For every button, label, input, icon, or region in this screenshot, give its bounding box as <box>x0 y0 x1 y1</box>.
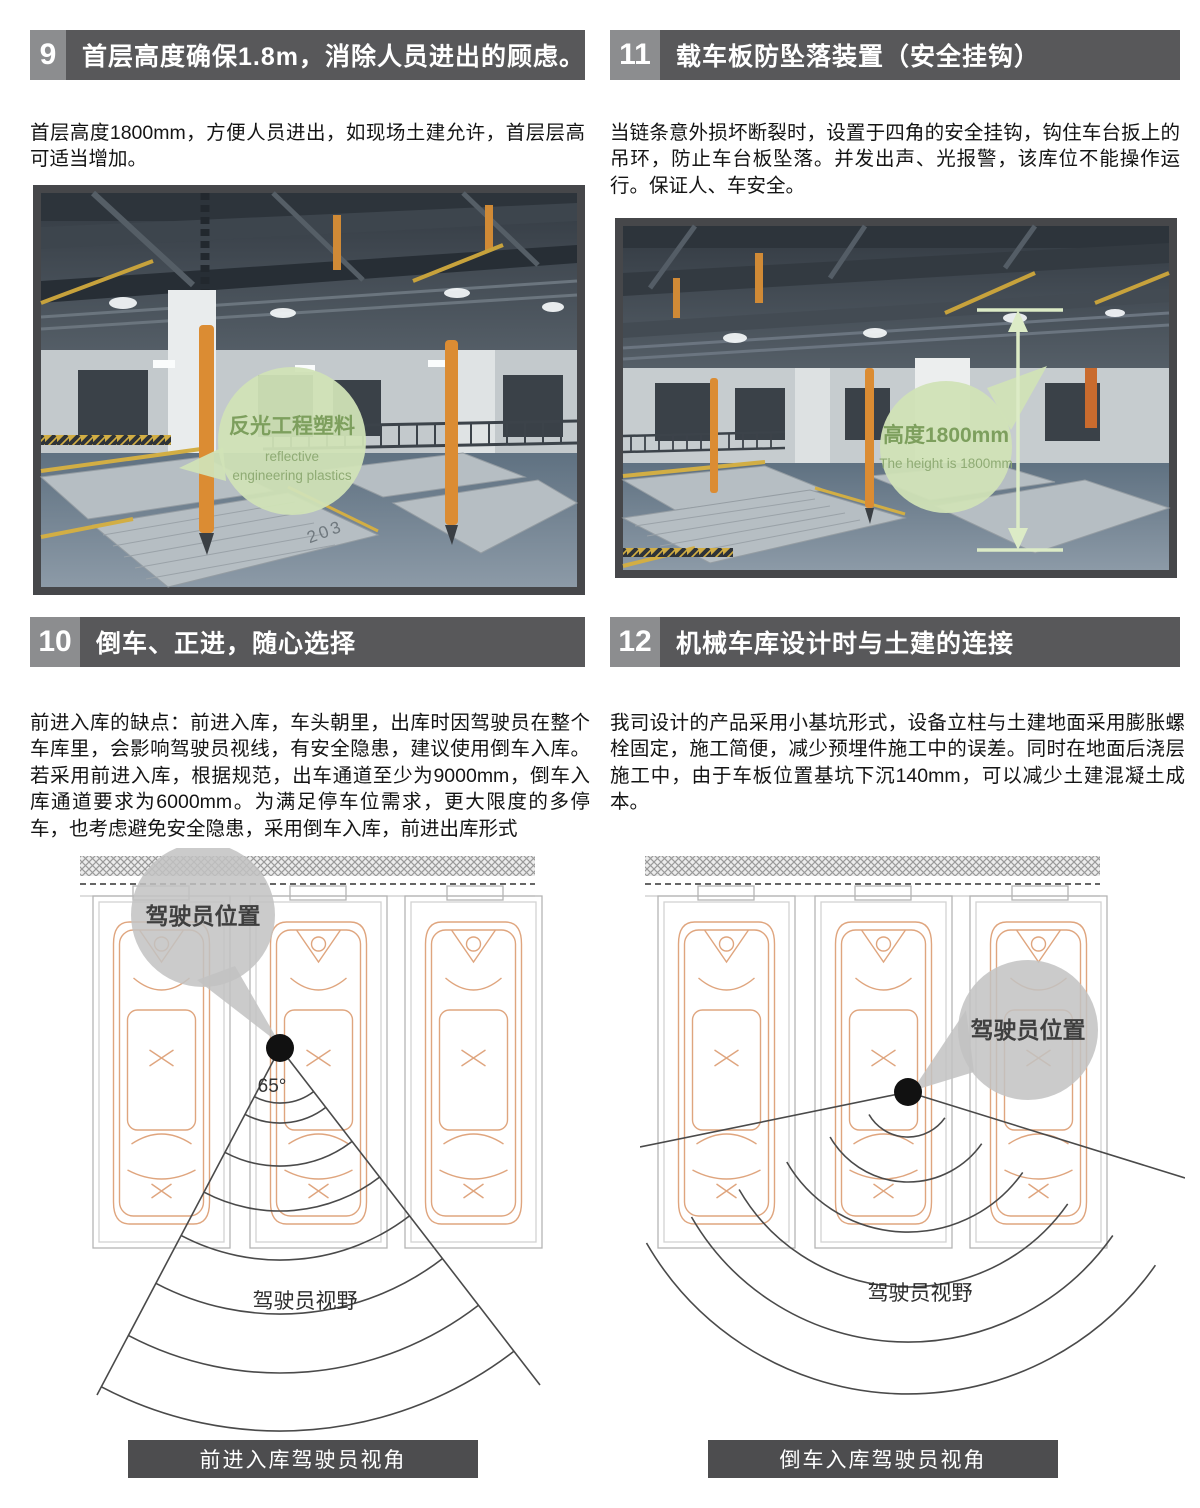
wall-hatch-band <box>645 856 1100 876</box>
callout-zh-text: 高度1800mm <box>883 423 1009 447</box>
photo-scene: 高度1800mm The height is 1800mm <box>623 226 1169 570</box>
callout-en-line1: reflective <box>265 449 319 464</box>
garage-photo-first-floor: 203 反光工程塑料 reflective engineering plasti… <box>33 185 585 595</box>
reverse-entry-diagram: 驾驶员视野 驾驶员位置 <box>640 848 1185 1432</box>
photo-scene: 203 反光工程塑料 reflective engineering plasti… <box>41 193 577 587</box>
section-11-body: 当链条意外损坏断裂时，设置于四角的安全挂钩，钩住车台扳上的吊环，防止车台板坠落。… <box>610 120 1180 200</box>
section-9-number: 9 <box>30 30 66 80</box>
view-angle-label: 65° <box>258 1076 287 1097</box>
driver-view-label: 驾驶员视野 <box>253 1290 358 1313</box>
brochure-page: 9 首层高度确保1.8m，消除人员进出的顾虑。 11 载车板防坠落装置（安全挂钩… <box>0 0 1200 1508</box>
driver-position-callout: 驾驶员位置 <box>131 848 280 1044</box>
section-9-body: 首层高度1800mm，方便人员进出，如现场土建允许，首层层高可适当增加。 <box>30 120 585 173</box>
driver-position-callout: 驾驶员位置 <box>912 960 1098 1100</box>
driver-view-label: 驾驶员视野 <box>868 1282 973 1305</box>
driver-position-dot <box>894 1078 922 1106</box>
section-9-title: 首层高度确保1.8m，消除人员进出的顾虑。 <box>66 30 585 80</box>
view-fan <box>97 1048 540 1431</box>
callout-zh-text: 反光工程塑料 <box>229 415 355 438</box>
section-10-body: 前进入库的缺点：前进入库，车头朝里，出库时因驾驶员在整个车库里，会影响驾驶员视线… <box>30 710 590 843</box>
garage-photo-height: 高度1800mm The height is 1800mm <box>615 218 1177 578</box>
section-10-number: 10 <box>30 617 80 667</box>
section-12-number: 12 <box>610 617 660 667</box>
driver-position-label: 驾驶员位置 <box>146 903 261 929</box>
forward-entry-diagram-svg: 65° 驾驶员视野 驾驶员位置 <box>75 848 545 1432</box>
callout-en-line2: engineering plastics <box>232 468 352 483</box>
forward-entry-diagram: 65° 驾驶员视野 驾驶员位置 <box>75 848 545 1432</box>
section-11-header: 11 载车板防坠落装置（安全挂钩） <box>610 30 1180 80</box>
section-10-title: 倒车、正进，随心选择 <box>80 617 585 667</box>
driver-position-label: 驾驶员位置 <box>971 1017 1086 1043</box>
view-fan <box>640 1092 1185 1394</box>
section-10-header: 10 倒车、正进，随心选择 <box>30 617 585 667</box>
driver-position-dot <box>266 1034 294 1062</box>
garage-photo-1-illustration: 203 反光工程塑料 reflective engineering plasti… <box>33 185 585 595</box>
section-12-header: 12 机械车库设计时与土建的连接 <box>610 617 1180 667</box>
section-12-body: 我司设计的产品采用小基坑形式，设备立柱与土建地面采用膨胀螺栓固定，施工简便，减少… <box>610 710 1185 816</box>
reverse-entry-diagram-svg: 驾驶员视野 驾驶员位置 <box>640 848 1185 1432</box>
callout-en-text: The height is 1800mm <box>879 456 1013 471</box>
section-11-title: 载车板防坠落装置（安全挂钩） <box>660 30 1180 80</box>
forward-entry-caption: 前进入库驾驶员视角 <box>128 1440 478 1478</box>
section-11-number: 11 <box>610 30 660 80</box>
garage-photo-2-illustration: 高度1800mm The height is 1800mm <box>615 218 1177 578</box>
section-9-header: 9 首层高度确保1.8m，消除人员进出的顾虑。 <box>30 30 585 80</box>
reverse-entry-caption: 倒车入库驾驶员视角 <box>708 1440 1058 1478</box>
section-12-title: 机械车库设计时与土建的连接 <box>660 617 1180 667</box>
